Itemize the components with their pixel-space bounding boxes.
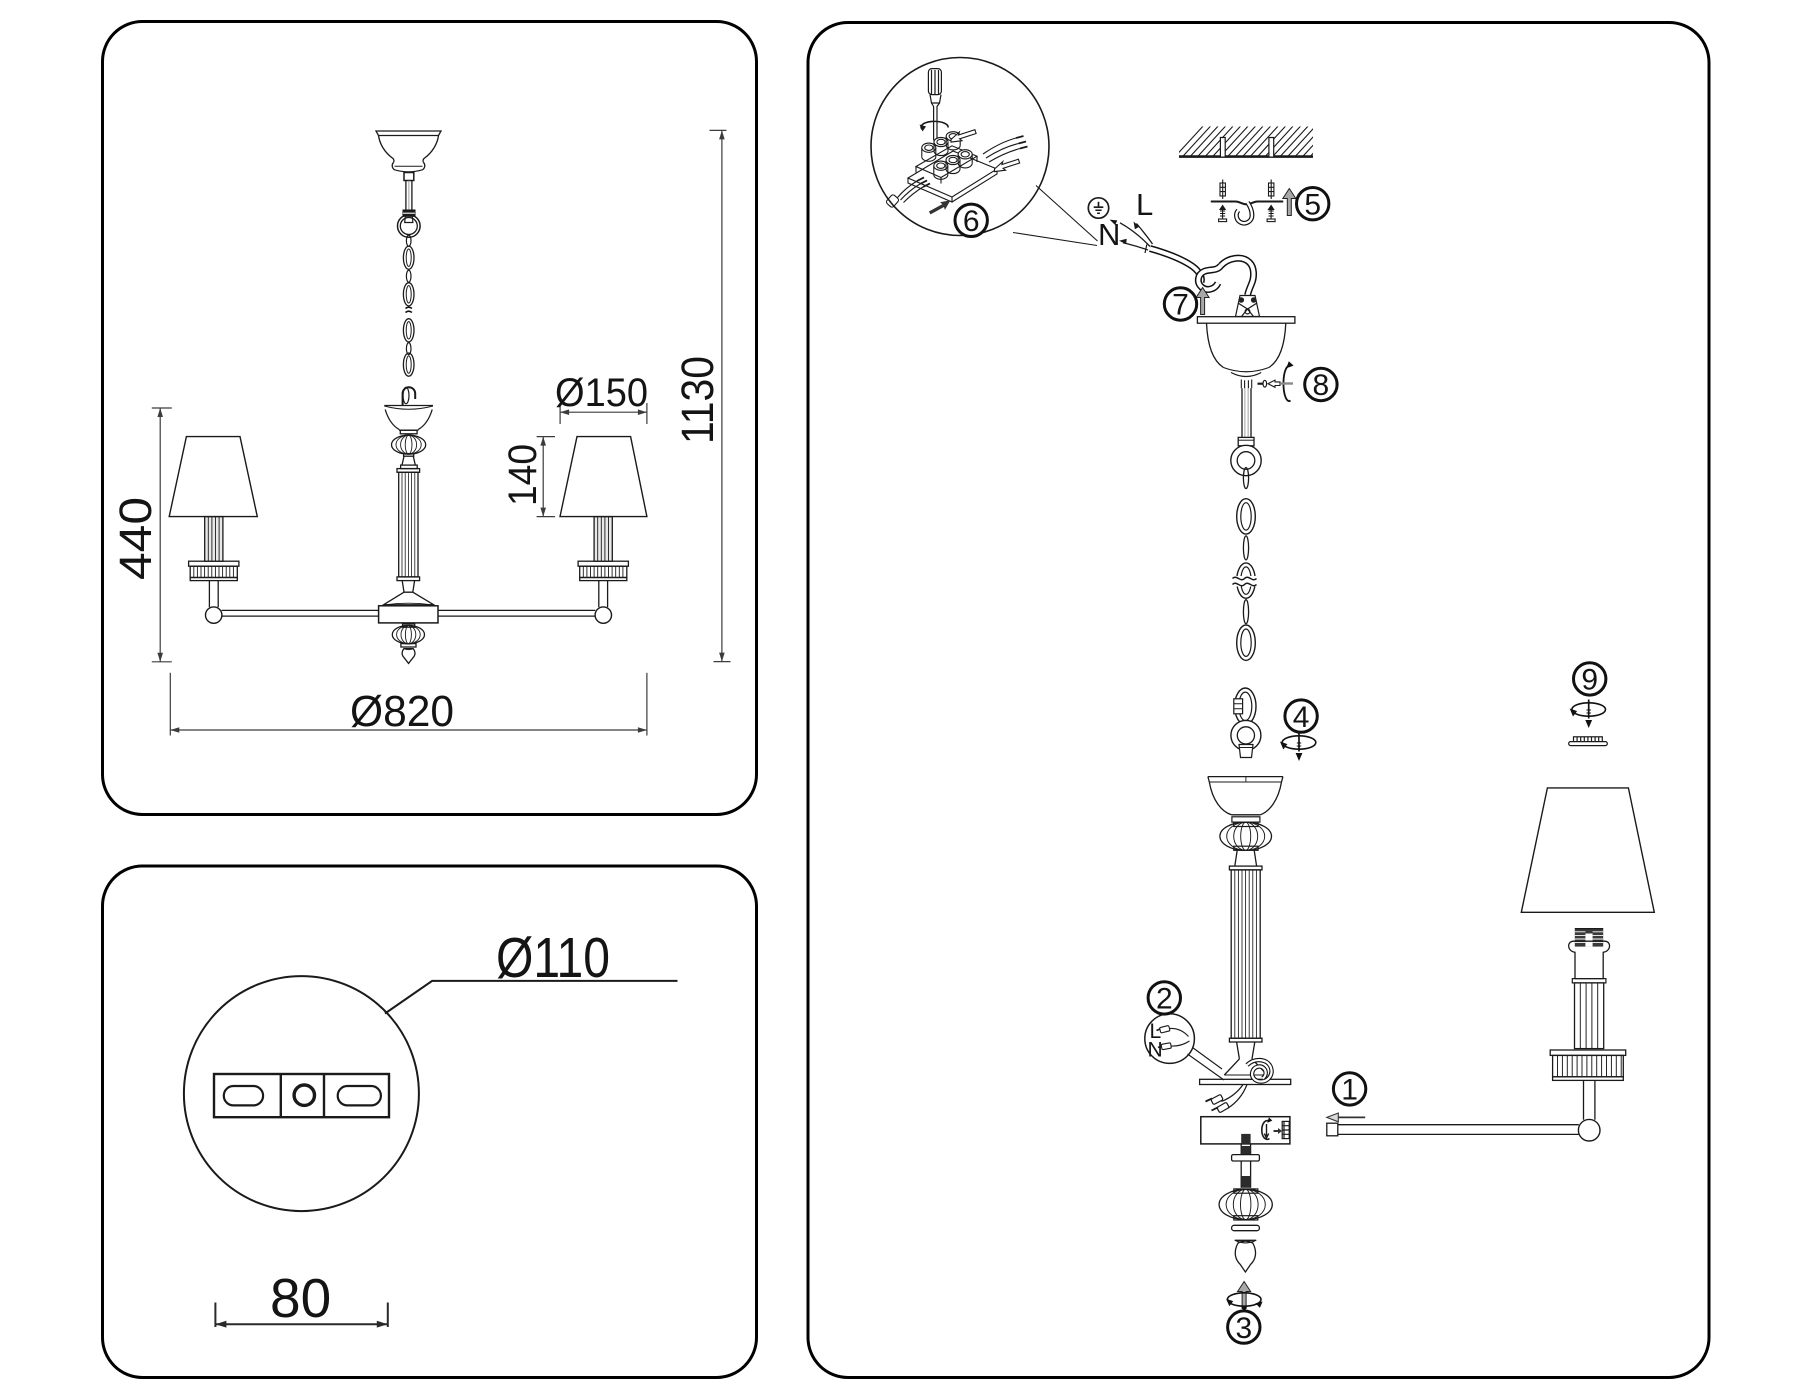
svg-text:Ø110: Ø110 [496,926,610,990]
svg-text:8: 8 [1313,369,1330,402]
svg-text:9: 9 [1581,664,1598,697]
svg-text:2: 2 [1156,983,1173,1016]
svg-text:3: 3 [1235,1312,1252,1345]
svg-text:Ø820: Ø820 [350,687,454,736]
svg-text:140: 140 [501,444,545,506]
svg-text:1130: 1130 [672,356,723,444]
svg-text:N: N [1098,217,1120,252]
svg-text:1: 1 [1341,1074,1358,1107]
svg-text:80: 80 [270,1267,331,1329]
svg-text:4: 4 [1293,701,1310,734]
svg-text:5: 5 [1304,188,1321,221]
svg-text:N: N [1148,1039,1163,1062]
svg-text:L: L [1136,187,1153,222]
svg-text:6: 6 [963,205,980,238]
svg-text:7: 7 [1172,289,1189,322]
svg-text:440: 440 [110,497,161,580]
svg-text:Ø150: Ø150 [555,371,648,415]
